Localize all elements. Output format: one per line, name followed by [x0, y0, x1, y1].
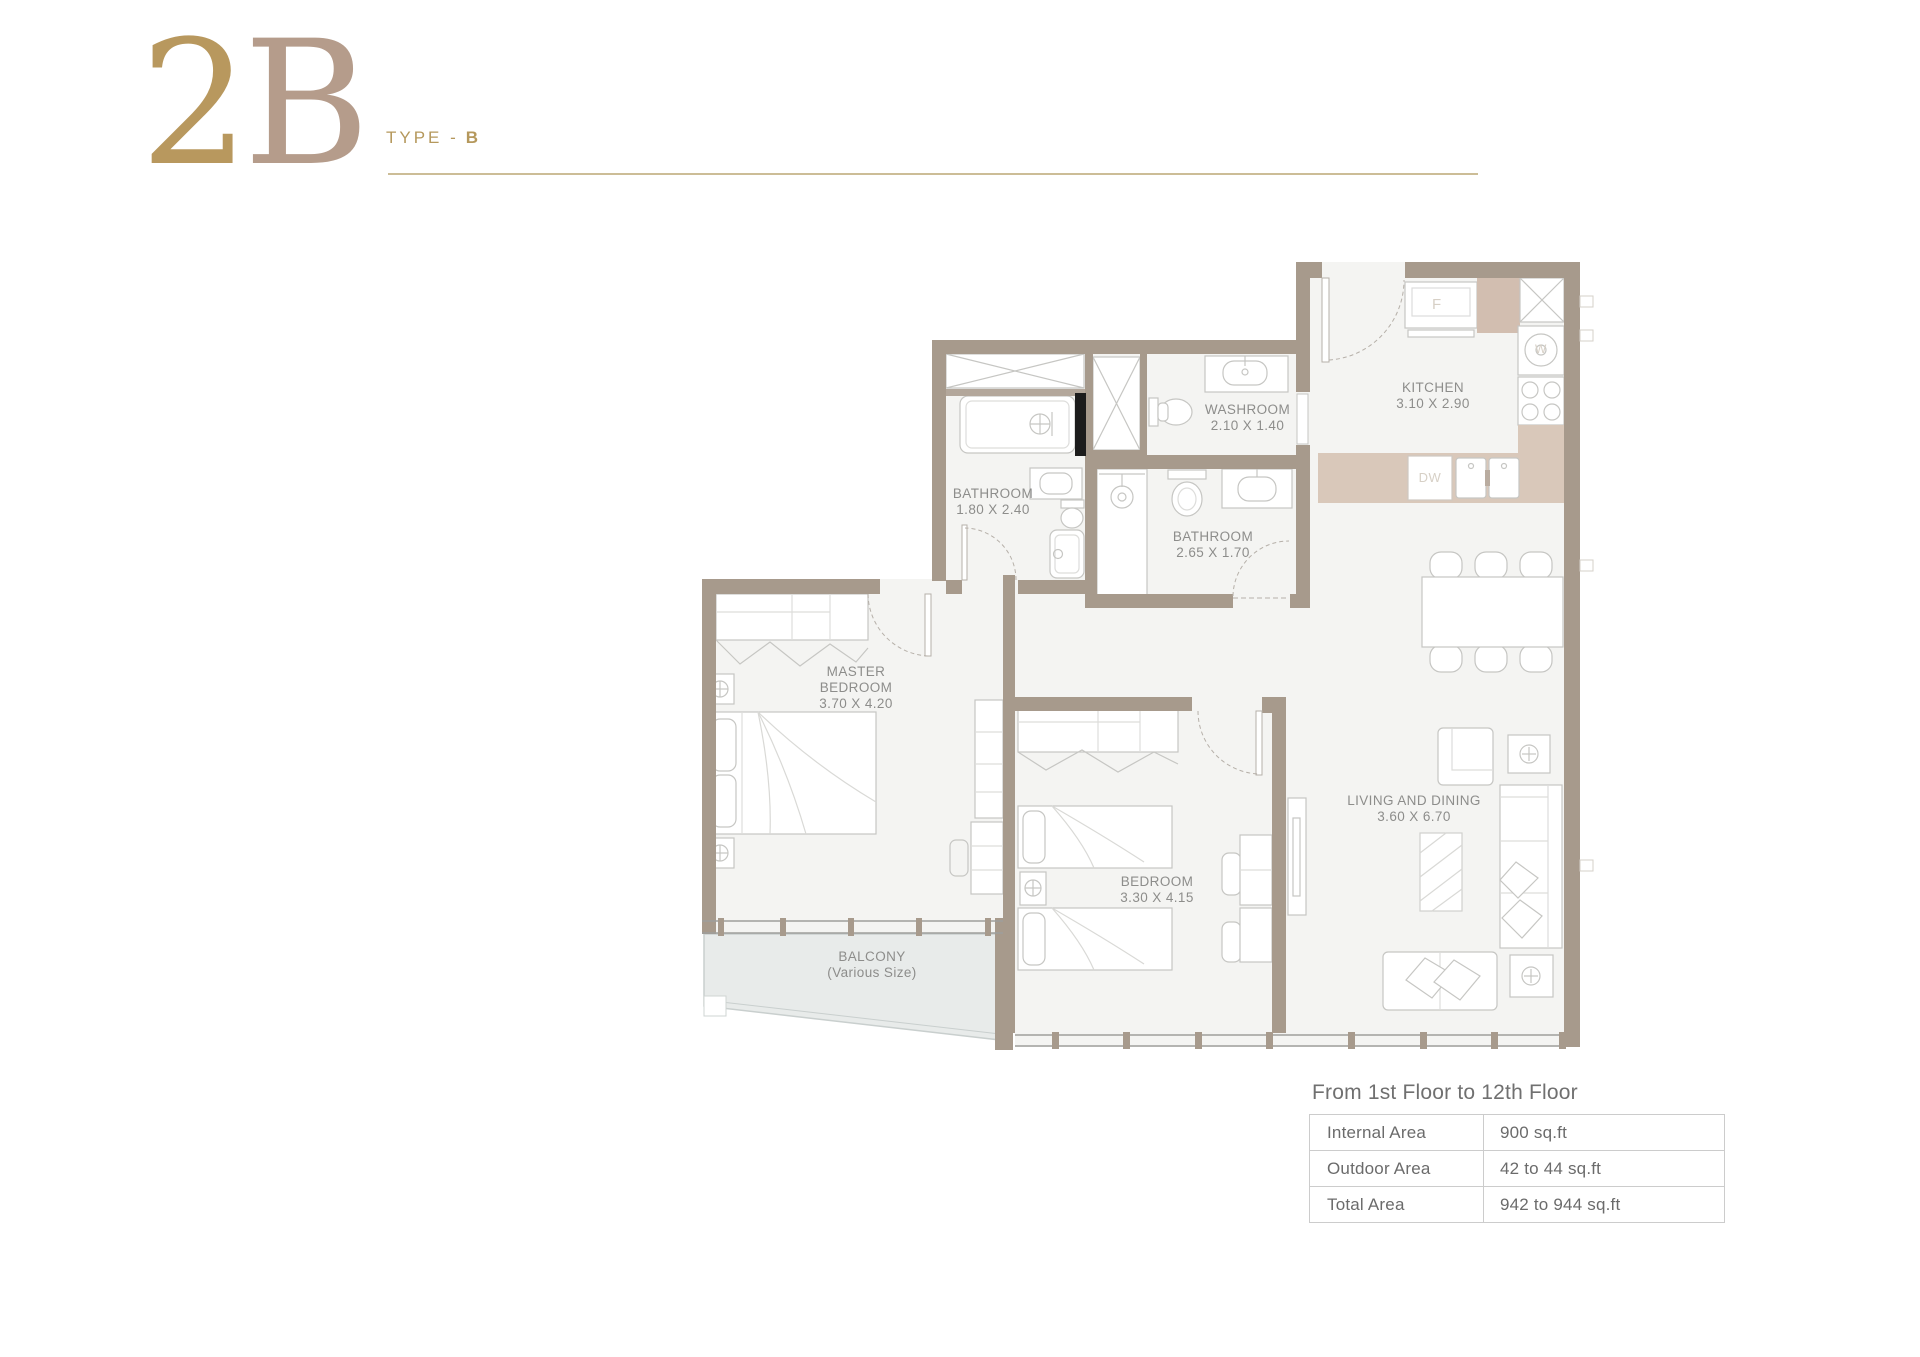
closet-shaft-narrow	[1093, 357, 1140, 450]
room-label-living-dining: LIVING AND DINING 3.60 X 6.70	[1314, 793, 1514, 825]
bedroom-bed-1	[1018, 806, 1172, 868]
area-row-label: Total Area	[1310, 1187, 1484, 1222]
area-row-value: 942 to 944 sq.ft	[1484, 1187, 1724, 1222]
room-name: BATHROOM	[913, 486, 1073, 502]
room-dims: 2.65 X 1.70	[1123, 545, 1303, 561]
dishwasher-label: DW	[1416, 470, 1444, 485]
daybed	[1383, 952, 1497, 1010]
room-name: WASHROOM	[1160, 402, 1335, 418]
ensuite-door-leaf	[962, 525, 967, 580]
area-table: Internal Area 900 sq.ft Outdoor Area 42 …	[1309, 1114, 1725, 1223]
room-name: BEDROOM	[1077, 874, 1237, 890]
armchair	[1438, 728, 1493, 785]
room-label-bathroom-small: BATHROOM 1.80 X 2.40	[913, 486, 1073, 518]
room-dims: 2.10 X 1.40	[1160, 418, 1335, 434]
area-row-label: Internal Area	[1310, 1115, 1484, 1150]
room-dims: 3.30 X 4.15	[1077, 890, 1237, 906]
stove	[1518, 377, 1564, 425]
side-table-lamp-bottom	[1510, 955, 1553, 997]
exterior-ticks	[1580, 296, 1593, 871]
tv-console	[1288, 798, 1306, 915]
closet-shaft-wide	[946, 354, 1084, 388]
room-label-washroom: WASHROOM 2.10 X 1.40	[1160, 402, 1335, 434]
table-row: Internal Area 900 sq.ft	[1310, 1115, 1724, 1150]
room-dims: 1.80 X 2.40	[913, 502, 1073, 518]
room-label-kitchen: KITCHEN 3.10 X 2.90	[1343, 380, 1523, 412]
kitchen-pantry-panel	[1477, 278, 1520, 333]
bedroom-door-leaf	[1256, 711, 1262, 775]
washroom-sink	[1205, 356, 1288, 392]
fridge-label: F	[1432, 296, 1442, 313]
room-name: BALCONY	[792, 949, 952, 965]
room-dims: 3.10 X 2.90	[1343, 396, 1523, 412]
room-label-balcony: BALCONY (Various Size)	[792, 949, 952, 981]
washer-label: W	[1535, 342, 1547, 356]
room-dims: (Various Size)	[792, 965, 952, 981]
shower-screen	[1075, 393, 1086, 456]
bedroom-nightstand	[1020, 872, 1046, 905]
room-label-bedroom: BEDROOM 3.30 X 4.15	[1077, 874, 1237, 906]
side-table-lamp-top	[1508, 735, 1550, 773]
floors-range-title: From 1st Floor to 12th Floor	[1312, 1081, 1578, 1105]
room-dims: 3.70 X 4.20	[796, 696, 916, 712]
room-dims: 3.60 X 6.70	[1314, 809, 1514, 825]
room-label-bathroom-large: BATHROOM 2.65 X 1.70	[1123, 529, 1303, 561]
entry-door-leaf	[1322, 278, 1329, 362]
shaft-box-kitchen	[1520, 278, 1564, 322]
dining-table	[1422, 577, 1563, 647]
table-row: Total Area 942 to 944 sq.ft	[1310, 1186, 1724, 1222]
master-bed	[706, 712, 876, 834]
kitchen-counter-right	[1518, 425, 1564, 455]
bathtub-top	[960, 396, 1075, 453]
table-row: Outdoor Area 42 to 44 sq.ft	[1310, 1150, 1724, 1186]
room-name: LIVING AND DINING	[1314, 793, 1514, 809]
bathroom-vanity	[1222, 469, 1292, 508]
area-row-value: 42 to 44 sq.ft	[1484, 1151, 1724, 1186]
area-row-label: Outdoor Area	[1310, 1151, 1484, 1186]
rug	[1420, 833, 1462, 911]
area-row-value: 900 sq.ft	[1484, 1115, 1724, 1150]
bedroom-bed-2	[1018, 908, 1172, 970]
room-label-master-bedroom: MASTER BEDROOM 3.70 X 4.20	[796, 664, 916, 712]
room-name: MASTER BEDROOM	[796, 664, 916, 696]
master-door-leaf	[925, 594, 931, 656]
ensuite-tub	[1050, 530, 1084, 578]
master-tall-wardrobe	[975, 700, 1003, 818]
brochure-page: 2B TYPE -B	[0, 0, 1920, 1357]
room-name: BATHROOM	[1123, 529, 1303, 545]
room-name: KITCHEN	[1343, 380, 1523, 396]
